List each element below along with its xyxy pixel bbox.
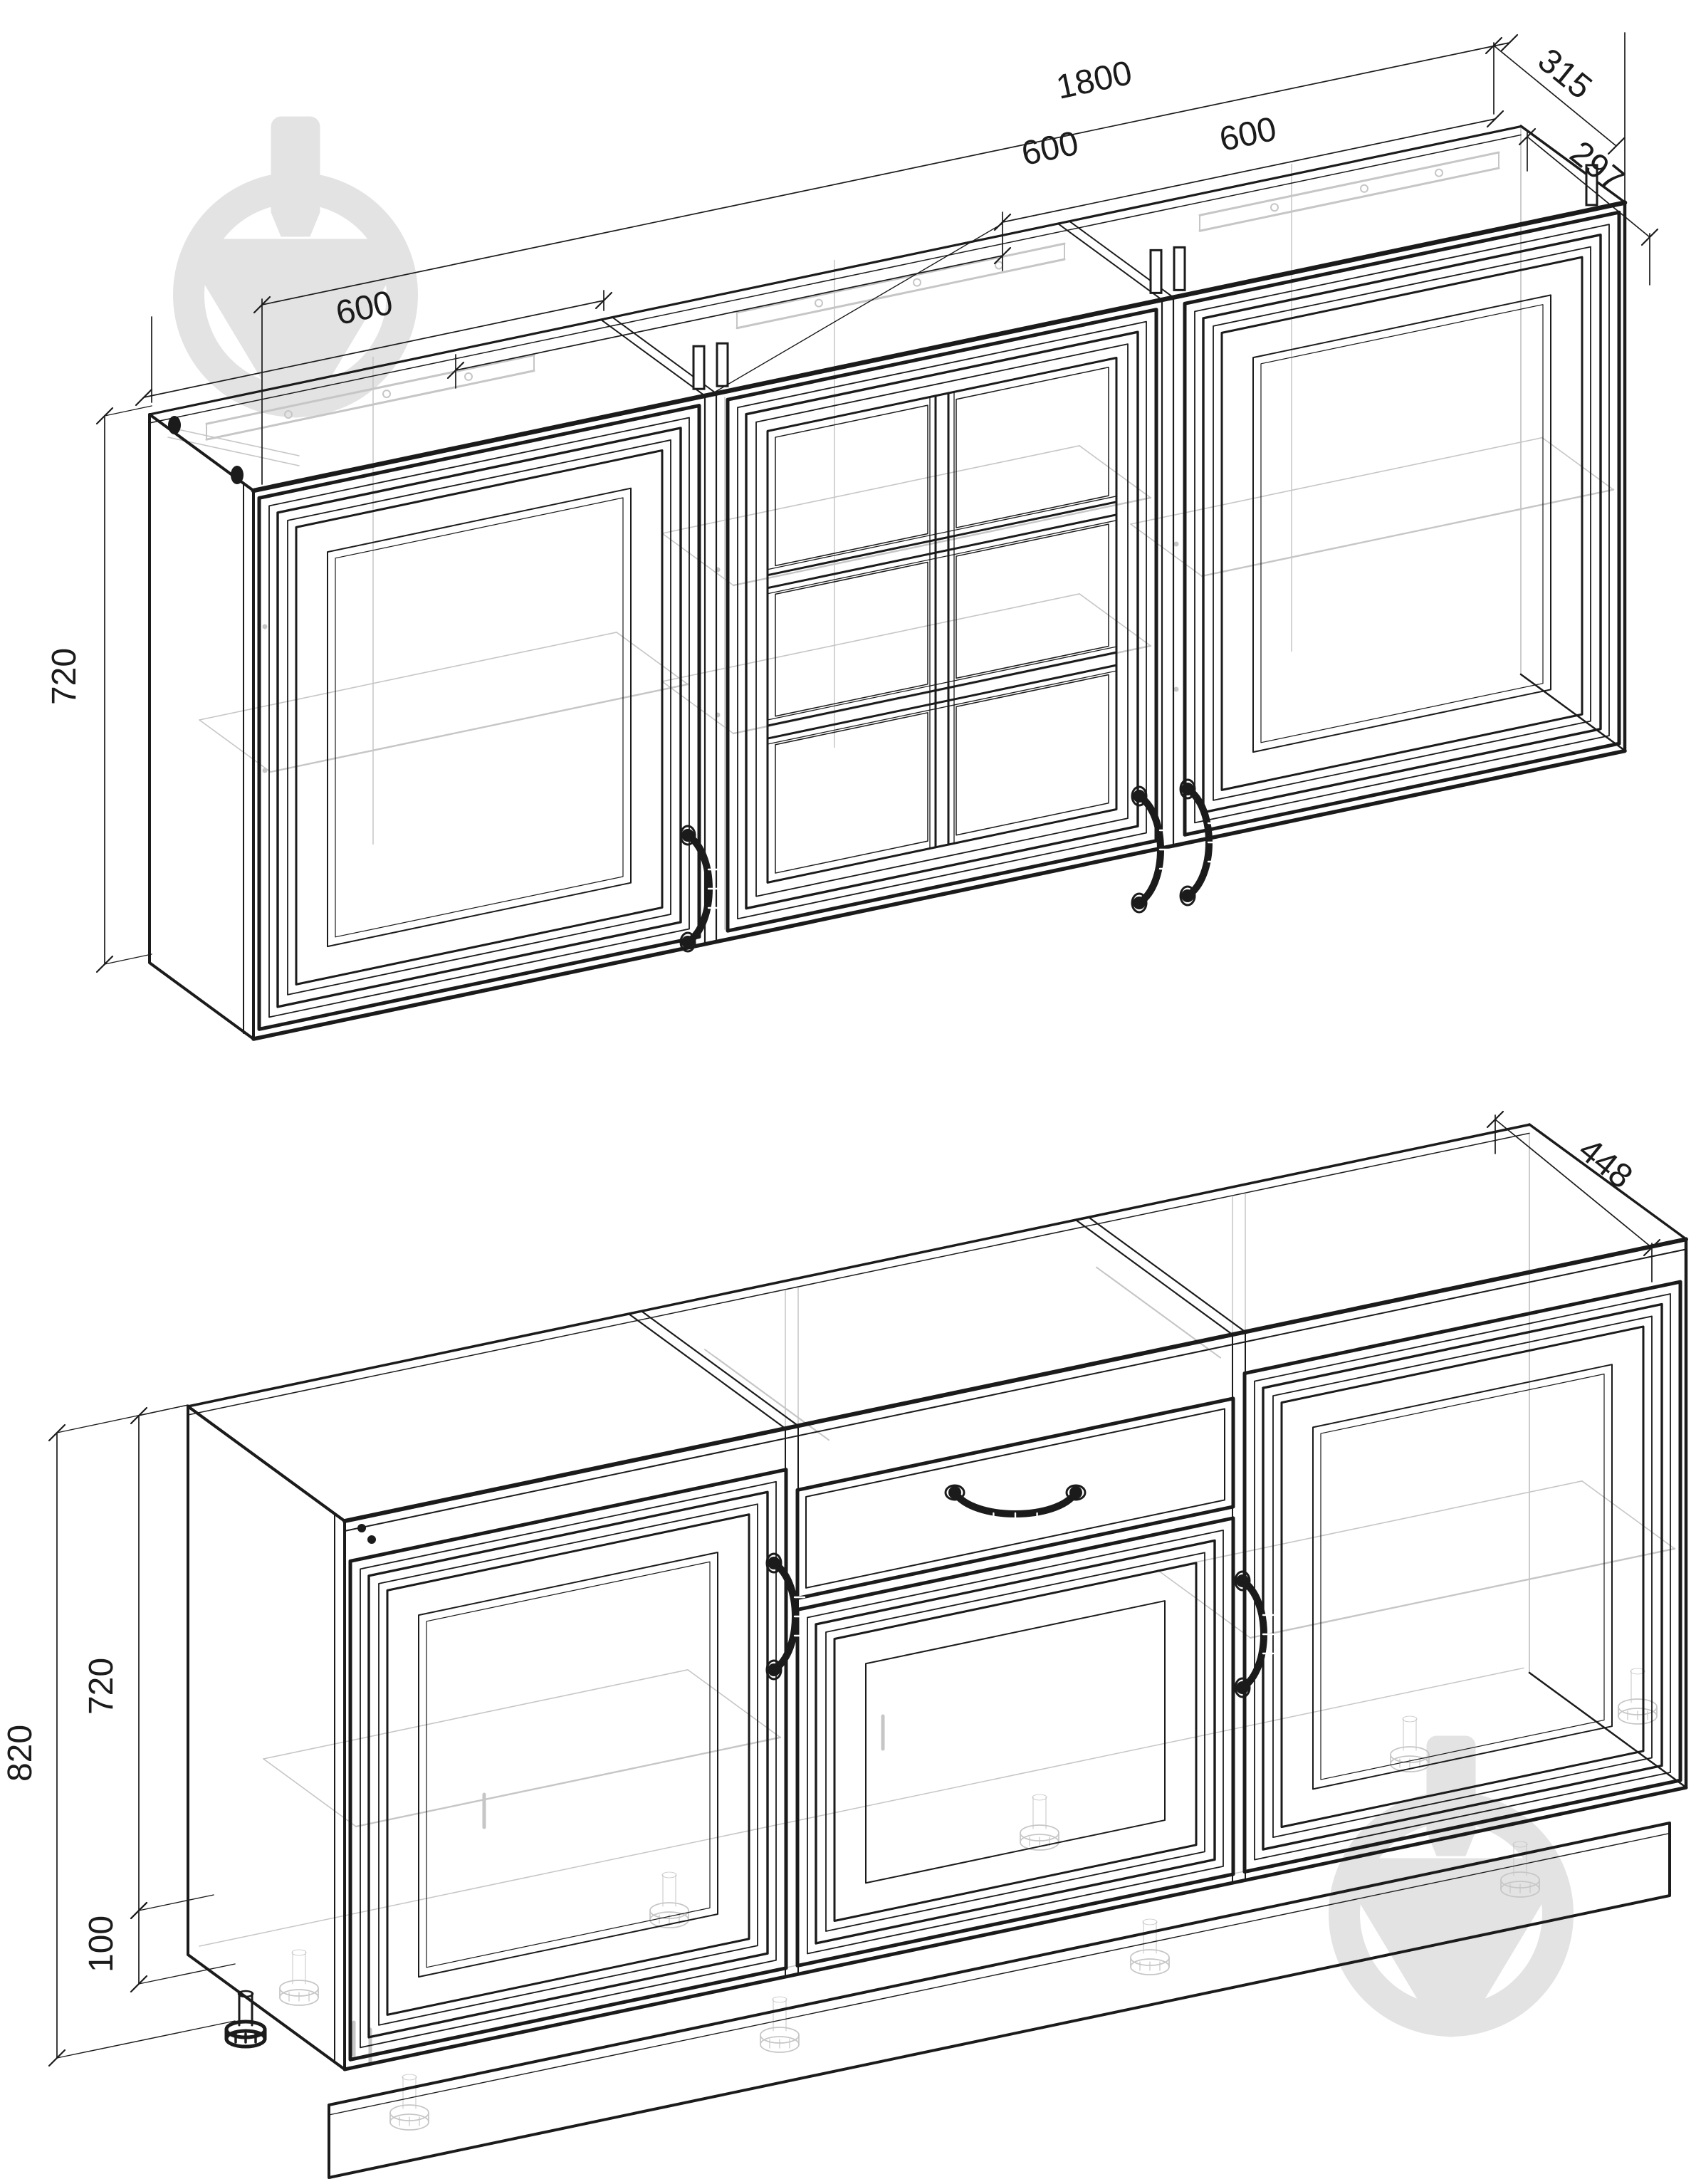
brand-watermark-icon <box>189 117 402 417</box>
dim-label-lower-depth: 448 <box>1571 1131 1640 1196</box>
dim-label-upper-total-width: 1800 <box>1053 54 1135 107</box>
upper-doors <box>259 212 1619 1029</box>
brand-watermark-icons <box>189 117 1558 2037</box>
upper-glass-door <box>728 310 1156 931</box>
dim-label-depth-facade: 315 <box>1531 41 1599 107</box>
brand-watermark-icon <box>1344 1736 1558 2037</box>
dim-label-upper-right-width: 600 <box>1216 110 1279 159</box>
dim-label-lower-body-height: 720 <box>83 1658 120 1715</box>
dim-label-upper-mid-width: 600 <box>1018 125 1082 173</box>
dim-label-upper-height: 720 <box>46 648 83 705</box>
lower-left-door <box>350 1470 786 2060</box>
upper-right-door <box>1185 212 1619 835</box>
technical-drawing: 600 1800 600 600 315 297 720 448 820 720… <box>0 0 1696 2184</box>
dim-label-depth-body: 297 <box>1563 134 1631 199</box>
drawing-page: 600 1800 600 600 315 297 720 448 820 720… <box>0 0 1696 2184</box>
dim-label-lower-legs-height: 100 <box>83 1916 120 1973</box>
upper-left-door <box>259 406 699 1030</box>
dim-label-lower-total-height: 820 <box>1 1725 39 1782</box>
